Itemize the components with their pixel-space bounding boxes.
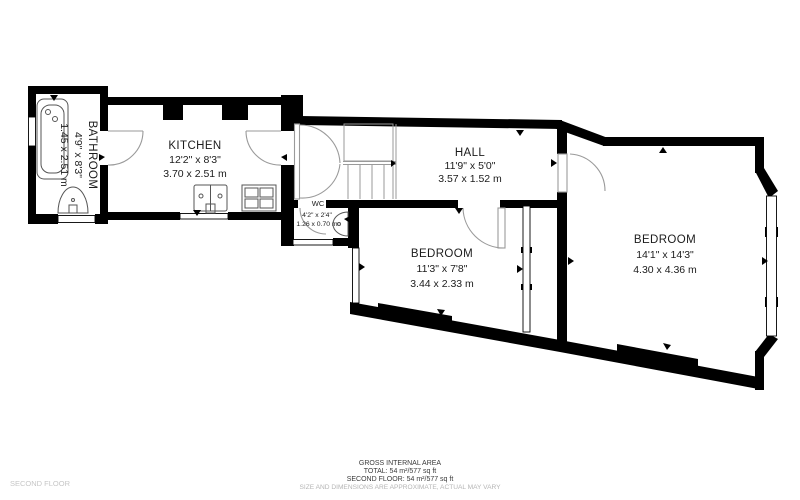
bedroom2-name: BEDROOM <box>634 234 696 246</box>
footer-disclaimer: SIZE AND DIMENSIONS ARE APPROXIMATE, ACT… <box>299 484 501 491</box>
bedroom1-label: BEDROOM 11'3" x 7'8" 3.44 x 2.33 m <box>410 248 474 290</box>
bedroom1-window <box>353 248 360 303</box>
hall-dims-imperial: 11'9" x 5'0" <box>445 160 496 172</box>
wc-dims-metric: 1.26 x 0.70 m <box>296 221 338 228</box>
wc-name: WC <box>312 199 325 208</box>
bathroom-door <box>108 131 143 165</box>
bathroom-name: BATHROOM <box>86 121 98 190</box>
bedroom1-door <box>463 208 505 248</box>
kitchen-sink <box>194 185 227 213</box>
floor-plan: BATHROOM 4'9" x 8'3" 1.45 x 2.51 m KITCH… <box>0 0 800 500</box>
bedroom2-dims-metric: 4.30 x 4.36 m <box>633 264 697 276</box>
footer-floor-total: SECOND FLOOR: 54 m²/577 sq ft <box>347 476 454 483</box>
entrance-double-doors <box>295 124 341 199</box>
bathroom-label: BATHROOM 4'9" x 8'3" 1.45 x 2.51 m <box>58 121 98 190</box>
stove <box>242 185 276 211</box>
bedroom2-label: BEDROOM 14'1" x 14'3" 4.30 x 4.36 m <box>633 234 697 276</box>
bedroom1-dims-metric: 3.44 x 2.33 m <box>410 278 474 290</box>
floor-label: SECOND FLOOR <box>10 479 71 488</box>
bay-window <box>767 196 777 336</box>
wc-window <box>293 240 333 246</box>
kitchen-name: KITCHEN <box>168 140 221 152</box>
bedroom1-dims-imperial: 11'3" x 7'8" <box>417 263 468 275</box>
kitchen-door <box>246 131 281 165</box>
bedroom2-dims-imperial: 14'1" x 14'3" <box>636 249 694 261</box>
staircase <box>343 124 396 199</box>
floorplan-page: BATHROOM 4'9" x 8'3" 1.45 x 2.51 m KITCH… <box>0 0 800 500</box>
bedroom2-door <box>558 154 605 192</box>
footer-total: TOTAL: 54 m²/577 sq ft <box>364 468 437 475</box>
footer-gross-area: GROSS INTERNAL AREA <box>359 460 442 467</box>
bathroom-window <box>29 117 36 146</box>
kitchen-window <box>180 214 228 220</box>
bathroom-sink <box>58 187 88 213</box>
bathroom-bottom-window <box>58 216 95 223</box>
wc-dims-imperial: 4'2" x 2'4" <box>302 212 332 219</box>
kitchen-dims-imperial: 12'2" x 8'3" <box>169 154 221 166</box>
hall-name: HALL <box>455 147 486 159</box>
footer: GROSS INTERNAL AREA TOTAL: 54 m²/577 sq … <box>299 460 501 491</box>
bedroom1-name: BEDROOM <box>411 248 473 260</box>
bedroom1-partition-window <box>523 206 530 332</box>
kitchen-dims-metric: 3.70 x 2.51 m <box>163 168 227 180</box>
hall-label: HALL 11'9" x 5'0" 3.57 x 1.52 m <box>438 147 502 185</box>
kitchen-label: KITCHEN 12'2" x 8'3" 3.70 x 2.51 m <box>163 140 227 180</box>
hall-dims-metric: 3.57 x 1.52 m <box>438 173 502 185</box>
bathroom-dims-imperial: 4'9" x 8'3" <box>72 132 84 178</box>
bathroom-dims-metric: 1.45 x 2.51 m <box>58 123 70 187</box>
